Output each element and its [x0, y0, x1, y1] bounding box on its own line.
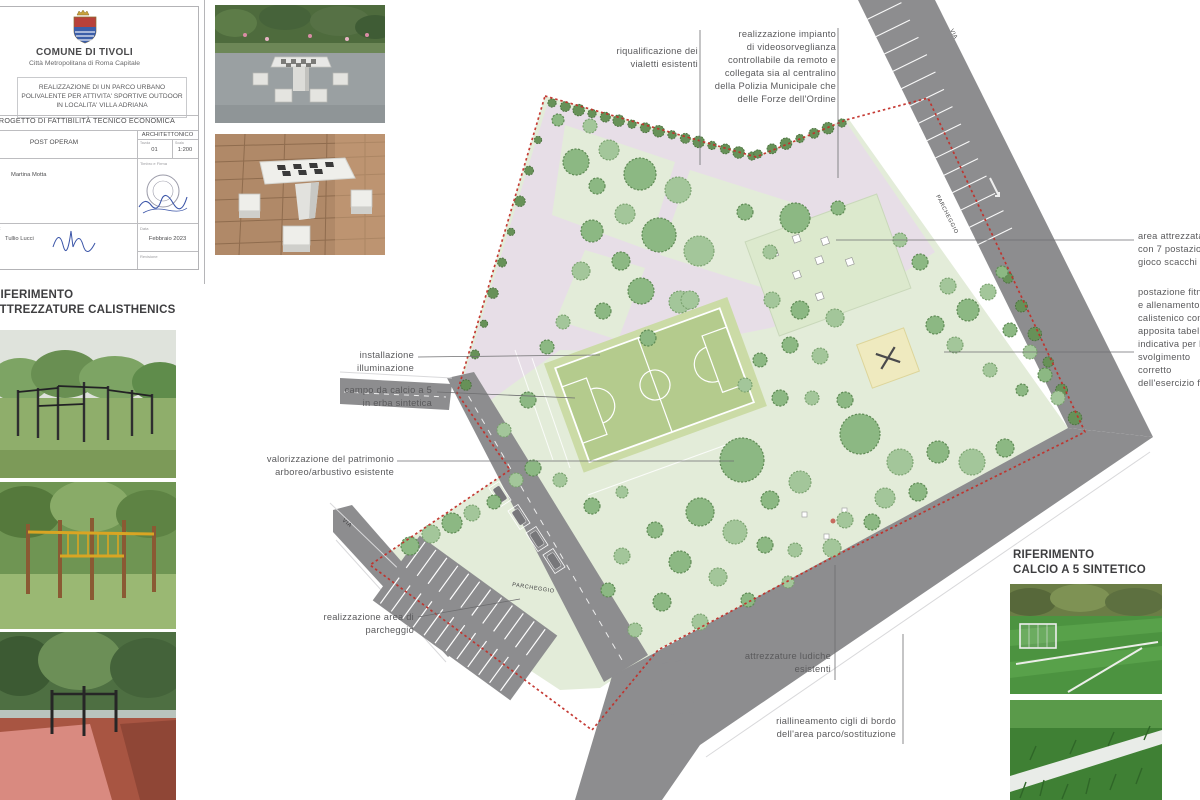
date-label: Data: [140, 226, 148, 231]
road-parking-label: PARCHEGGIO: [934, 194, 959, 235]
annotation-valorizzazione: valorizzazione del patrimonioarboreo/arb…: [267, 453, 394, 479]
municipality-name: COMUNE DI TIVOLI: [0, 47, 198, 58]
photo-calisthenics-2: [0, 482, 176, 629]
manager-name: Tullio Lucci: [5, 236, 34, 242]
category-value: ARCHITETTONICO: [137, 132, 198, 138]
sheet-frame-line: [204, 0, 205, 284]
calisthenics-reference-heading: RIFERIMENTO ATTREZZATURE CALISTHENICS: [0, 288, 175, 318]
date-value: Febbraio 2023: [137, 236, 198, 242]
drawing-sheet: PARCHEGGIO PARCHEGGIO VIA VIA COMUNE DI …: [0, 0, 1200, 800]
photo-calcio-2: [1010, 700, 1162, 800]
annotation-riallineamento: riallineamento cigli di bordodell'area p…: [776, 715, 896, 741]
scale-value: 1:200: [172, 147, 198, 153]
manager-label: Il Dirigente U.T.: [0, 226, 1, 231]
revision-label: Revisione: [140, 254, 158, 259]
scale-label: Scala: [175, 141, 184, 145]
annotation-campo-calcio: campo da calcio a 5in erba sintetica: [345, 384, 432, 410]
photo-chess-table-2: [215, 134, 385, 255]
annotation-postazione-fitness: postazione fitnesse allenamento calisten…: [1138, 286, 1200, 390]
photo-calcio-1: [1010, 584, 1162, 694]
tivoli-coat-of-arms: [68, 9, 102, 49]
designer-name: Martina Motta: [11, 172, 46, 178]
photo-calisthenics-1: [0, 330, 176, 478]
annotation-riqualificazione: riqualificazione deivialetti esistenti: [617, 45, 699, 71]
annotation-illuminazione: installazioneilluminazione: [357, 349, 414, 375]
title-block: COMUNE DI TIVOLI Città Metropolitana di …: [0, 6, 199, 270]
annotation-area-parcheggio: realizzazione area diparcheggio: [323, 611, 414, 637]
annotation-videosorveglianza: realizzazione impiantodi videosorveglian…: [715, 28, 836, 106]
phase-value: POST OPERAM: [0, 139, 137, 146]
sheet-number: 01: [137, 147, 172, 153]
stamp-label: Timbro e Firma: [140, 161, 167, 166]
sheet-label: Tavola: [140, 141, 150, 145]
photo-calisthenics-3: [0, 632, 176, 800]
annotation-area-scacchi: area attrezzatacon 7 postazioni gioco sc…: [1138, 230, 1200, 269]
manager-signature: [49, 225, 119, 255]
annotation-attrezzature-ludiche: attrezzature ludicheesistenti: [745, 650, 831, 676]
municipality-subtitle: Città Metropolitana di Roma Capitale: [0, 60, 198, 67]
calcio-reference-heading: RIFERIMENTO CALCIO A 5 SINTETICO: [1013, 548, 1146, 578]
photo-chess-table-1: [215, 5, 385, 123]
document-type: PROGETTO DI FATTIBILITÀ TECNICO ECONOMIC…: [0, 116, 198, 125]
project-title: REALIZZAZIONE DI UN PARCO URBANO POLIVAL…: [17, 77, 187, 118]
stamp-and-signature: [133, 167, 193, 222]
